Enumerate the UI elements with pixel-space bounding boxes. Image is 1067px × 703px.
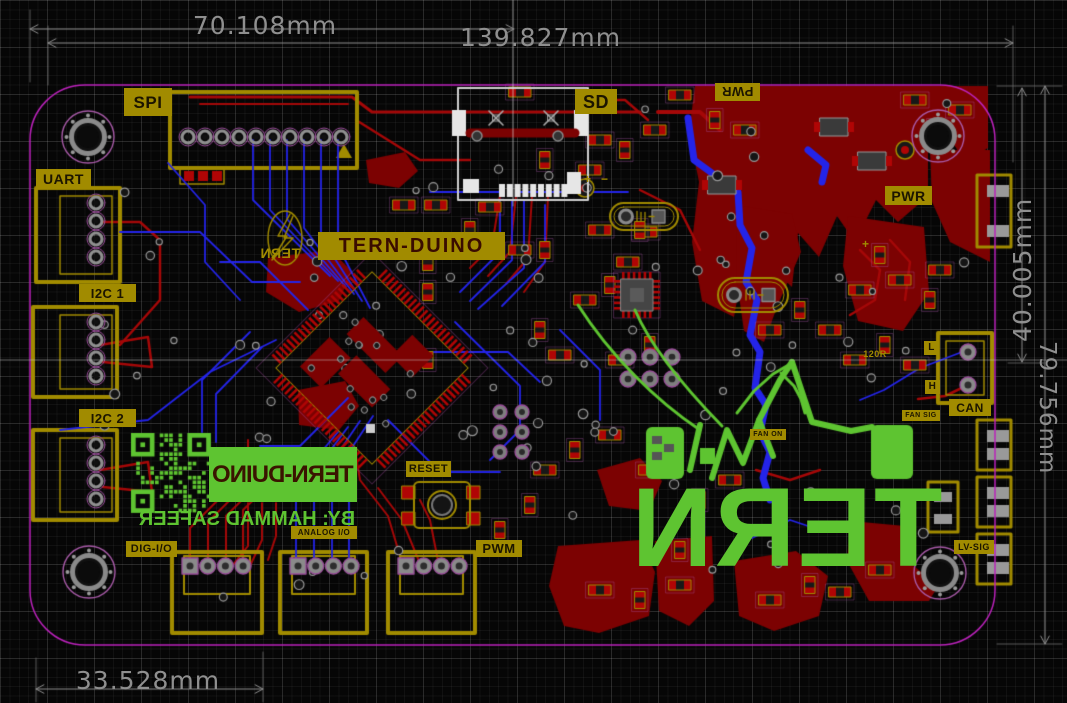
polarity-plus-mark: + [862, 237, 869, 251]
dimension-width-bottom: 33.528mm [72, 666, 224, 695]
silk-label-lv-sig: LV-SIG [954, 540, 994, 554]
credit-text: BY: HAMMAD SAFEER [123, 506, 371, 532]
silk-label-tern-duino: TERN-DUINO [318, 232, 505, 260]
silk-label-tern-bird: TERN [248, 244, 312, 262]
silk-label-i2c1: I2C 1 [79, 284, 136, 302]
polarity-minus-mark: − [601, 172, 608, 186]
silk-label-reset: RESET [406, 461, 451, 477]
silk-label-120r: 120R [858, 349, 892, 360]
silk-label-pwr-top: PWR [715, 83, 760, 101]
qr-code [131, 433, 211, 513]
silk-label-spi: SPI [124, 88, 172, 116]
dimension-height-partial: 40.005mm [1008, 150, 1037, 390]
logo-sticker: TERN-DUINO [209, 447, 357, 502]
tern-logo-text: TERN [632, 446, 940, 598]
silk-label-uart: UART [36, 169, 91, 188]
polarity-plus-mark: + [584, 172, 591, 186]
silk-label-i2c2: I2C 2 [79, 409, 136, 427]
silk-label-fan-sig: FAN SIG [902, 410, 940, 421]
silk-label-sd: SD [575, 89, 617, 114]
silk-label-pwm: PWM [476, 540, 522, 557]
silk-label-can: CAN [949, 399, 991, 416]
silk-label-dig-io: DIG-I/O [126, 541, 177, 557]
pcb-viewport[interactable]: 70.108mm 139.827mm 33.528mm 40.005mm 79.… [0, 0, 1067, 703]
silk-label-fan-on: FAN ON [750, 429, 786, 440]
silk-label-can-l: L [924, 341, 939, 355]
dimension-width-total: 139.827mm [460, 23, 612, 52]
sticker-title: TERN-DUINO [213, 461, 354, 489]
silk-label-can-h: H [925, 380, 940, 394]
silk-label-pwr-right: PWR [885, 186, 932, 205]
dimension-height-total: 79.756mm [1034, 288, 1060, 528]
dimension-width-partial: 70.108mm [185, 11, 345, 40]
